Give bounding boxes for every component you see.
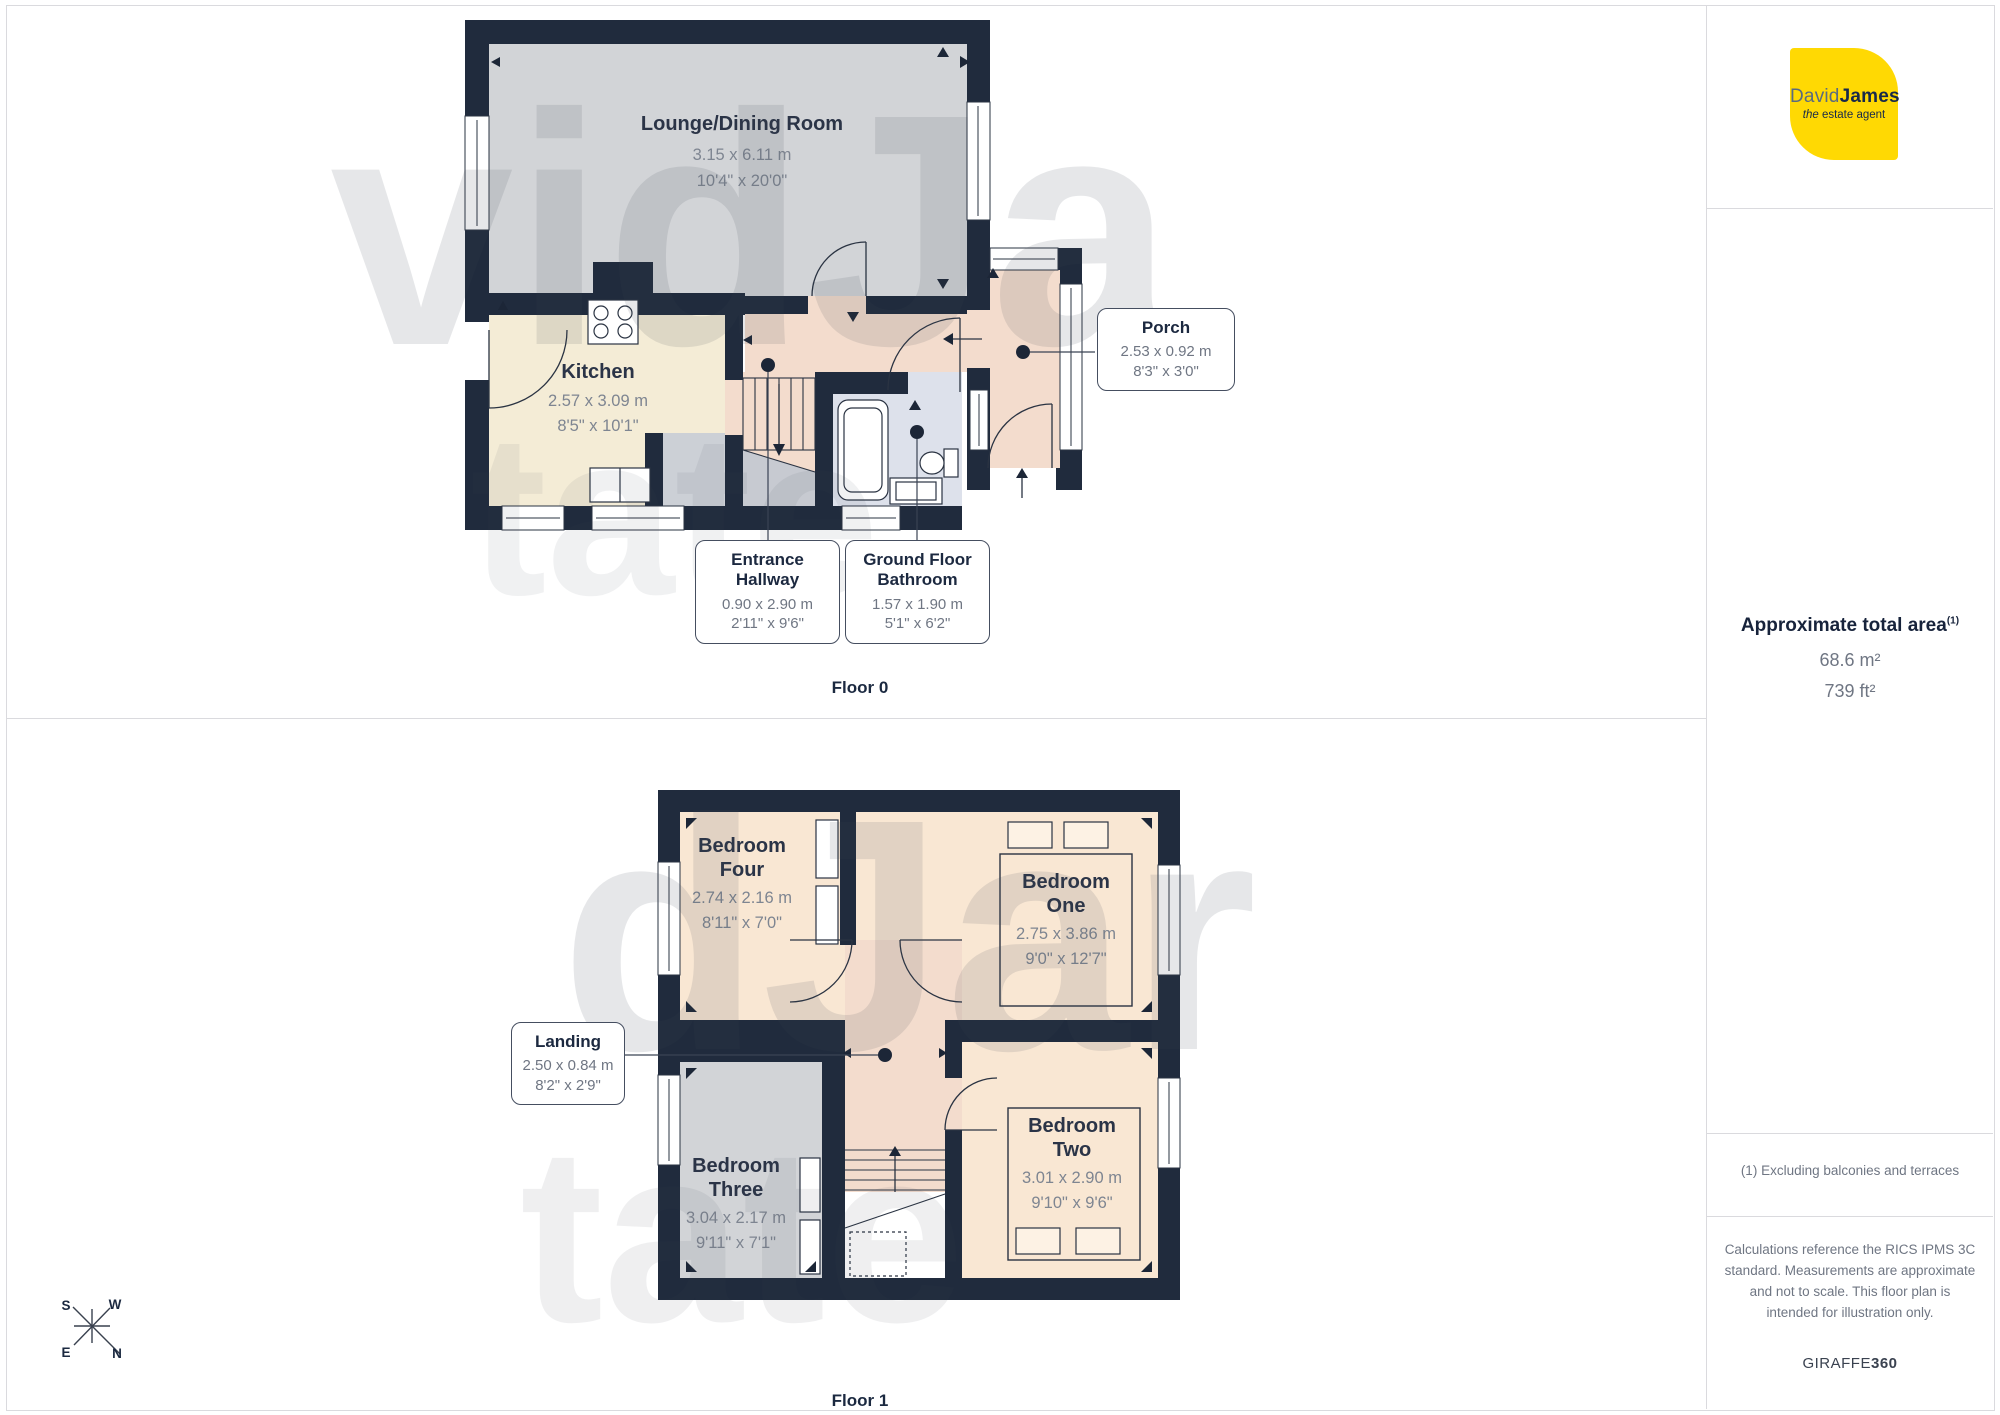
bedroom-one-name1: Bedroom [1022,871,1110,893]
porch-callout: Porch 2.53 x 0.92 m 8'3" x 3'0" [1097,308,1235,391]
toilet [944,449,958,477]
bedroom-three-name1: Bedroom [692,1155,780,1177]
kitchen-name: Kitchen [561,361,634,383]
wardrobe [800,1158,820,1212]
compass-west: W [109,1297,122,1312]
pillow [1016,1228,1060,1254]
floor0-label: Floor 0 [780,678,940,698]
bedroom-two-metric: 3.01 x 2.90 m [1022,1169,1122,1187]
landing-callout: Landing 2.50 x 0.84 m 8'2" x 2'9" [511,1022,625,1105]
bedroom-two-name1: Bedroom [1028,1115,1116,1137]
bedroom-two-imperial: 9'10" x 9'6" [1031,1194,1112,1212]
giraffe360-brand: GIRAFFE360 [1710,1355,1990,1372]
sidebar-divider-mid [1706,1133,1993,1134]
pillow [1008,822,1052,848]
porch-imperial: 8'3" x 3'0" [1104,362,1228,382]
wardrobe [816,820,838,878]
compass: S W E N [40,1285,140,1380]
hob [588,300,638,344]
kitchen-metric: 2.57 x 3.09 m [548,392,648,410]
total-area-title: Approximate total area(1) [1710,615,1990,637]
entrance-hallway-callout: Entrance Hallway 0.90 x 2.90 m 2'11" x 9… [695,540,840,644]
porch-name: Porch [1104,318,1228,338]
floorplan-page: Lounge/Dining Room 3.15 x 6.11 m 10'4" x… [0,0,2000,1415]
compass-east: E [61,1345,70,1360]
compass-north: N [112,1346,122,1361]
sidebar-divider-top [1706,208,1993,209]
bedroom-one-metric: 2.75 x 3.86 m [1016,925,1116,943]
landing-floor [845,940,962,1020]
total-area-metric: 68.6 m² [1710,650,1990,671]
compass-south: S [61,1298,70,1313]
bedroom-four-name2: Four [720,859,765,881]
porch-floor [990,270,1060,468]
floors-divider [6,718,1706,719]
wardrobe [800,1220,820,1274]
floor1-label: Floor 1 [780,1391,940,1411]
entry-nook-floor [663,433,725,506]
bedroom-four-name1: Bedroom [698,835,786,857]
lounge-name: Lounge/Dining Room [641,113,843,135]
bedroom-three-name2: Three [709,1179,763,1201]
bedroom-one-name2: One [1047,895,1086,917]
exclusion-note: (1) Excluding balconies and terraces [1712,1163,1988,1178]
bedroom-three-metric: 3.04 x 2.17 m [686,1209,786,1227]
lounge-metric: 3.15 x 6.11 m [693,146,792,164]
porch-metric: 2.53 x 0.92 m [1104,342,1228,362]
bedroom-one-imperial: 9'0" x 12'7" [1025,950,1106,968]
ground-floor-bathroom-callout: Ground Floor Bathroom 1.57 x 1.90 m 5'1"… [845,540,990,644]
lounge-floor [489,44,967,296]
total-area-imperial: 739 ft² [1710,681,1990,702]
pillow [1076,1228,1120,1254]
bathtub [838,400,888,500]
disclaimer-text: Calculations reference the RICS IPMS 3C … [1722,1240,1978,1324]
kitchen-imperial: 8'5" x 10'1" [557,417,638,435]
floor1-openings [945,1078,962,1130]
brand-tagline: the estate agent [1790,109,1898,121]
sidebar-divider-low [1706,1216,1993,1217]
bedroom-four-metric: 2.74 x 2.16 m [692,889,792,907]
pillow [1064,822,1108,848]
sidebar-divider [1706,5,1707,1409]
bedroom-three-imperial: 9'11" x 7'1" [696,1234,776,1252]
bedroom-two-name2: Two [1053,1139,1092,1161]
lounge-imperial: 10'4" x 20'0" [697,172,788,190]
storage-box [850,1232,906,1276]
davidjames-logo: DavidJames the estate agent [1790,48,1898,160]
wardrobe [816,886,838,944]
bedroom-four-imperial: 8'11" x 7'0" [702,914,782,932]
brand-name: DavidJames [1790,86,1898,108]
footnote-marker: (1) [1947,616,1959,627]
